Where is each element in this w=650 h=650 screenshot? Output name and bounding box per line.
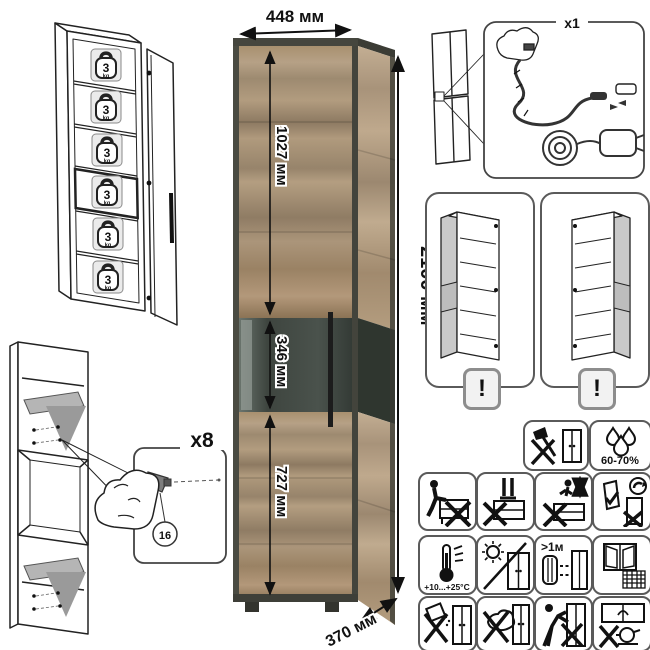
- door-right-drawing: [542, 194, 644, 380]
- temperature-range-icon: +10...+25°C: [418, 535, 477, 595]
- no-heat-appliances-icon: [592, 596, 650, 650]
- product-photo: 448 мм 1027 мм 346 мм 727 мм 2100 мм 370…: [225, 0, 425, 650]
- no-direct-sunlight-icon: [476, 535, 535, 595]
- svg-text:kg: kg: [103, 116, 109, 122]
- humidity-icon: 60-70%: [589, 420, 650, 471]
- no-spills-icon: [418, 596, 477, 650]
- side-glass: [358, 318, 395, 424]
- svg-text:kg: kg: [105, 243, 111, 249]
- svg-text:kg: kg: [105, 286, 111, 292]
- instruction-sheet: 3kg 3kg 3kg 3kg 3kg 3kg: [0, 0, 650, 650]
- side-panel-lower: [358, 412, 395, 625]
- calendar-grid: [623, 571, 645, 588]
- hand-illustration: [95, 470, 159, 529]
- shelf-load-drawing: 3kg 3kg 3kg 3kg 3kg 3kg: [5, 3, 220, 328]
- kit-quantity-label: x1: [564, 15, 580, 31]
- door-option-left-box: !: [425, 192, 535, 388]
- no-wet-cleaning-icon: [476, 596, 535, 650]
- side-panel-upper: [358, 46, 395, 330]
- no-dragging-icon: [534, 596, 593, 650]
- ventilation-icon: [592, 535, 650, 595]
- no-standing-icon: [476, 472, 535, 531]
- depth-label: 370 мм: [323, 611, 380, 650]
- height-label: 2100 мм: [416, 246, 425, 326]
- no-impact-tools-icon: [523, 420, 589, 471]
- warning-badge: !: [578, 368, 616, 410]
- temperature-label: +10...+25°C: [424, 582, 469, 591]
- humidity-label: 60-70%: [601, 455, 639, 467]
- load-unit: kg: [103, 74, 109, 80]
- transport-flat-icon: [592, 472, 650, 531]
- pin-part-number: 16: [159, 530, 171, 542]
- assembly-cabinet-side: [10, 342, 18, 628]
- svg-text:kg: kg: [104, 159, 110, 165]
- warning-badge: !: [463, 368, 501, 410]
- width-label: 448 мм: [266, 7, 324, 26]
- heat-distance-icon: >1м: [534, 535, 593, 595]
- door-option-right-box: !: [540, 192, 650, 388]
- pin-quantity-label: x8: [190, 429, 214, 452]
- assembly-drawing: x8 16: [2, 330, 232, 650]
- glass-section: [239, 318, 352, 412]
- door-left-drawing: [427, 194, 529, 380]
- no-sitting-icon: [418, 472, 477, 531]
- lower-door: [239, 412, 352, 600]
- no-jumping-icon: [534, 472, 593, 531]
- led-kit-diagram: x1: [420, 8, 650, 186]
- door-handle: [328, 312, 333, 427]
- middle-section-label: 346 мм: [273, 336, 290, 387]
- door-handle: [171, 193, 172, 243]
- upper-section-label: 1027 мм: [273, 126, 290, 186]
- upper-door: [239, 46, 352, 318]
- cabinet-render: [233, 38, 395, 625]
- heat-distance-label: >1м: [541, 540, 564, 554]
- svg-text:kg: kg: [104, 201, 110, 207]
- lower-section-label: 727 мм: [273, 466, 290, 517]
